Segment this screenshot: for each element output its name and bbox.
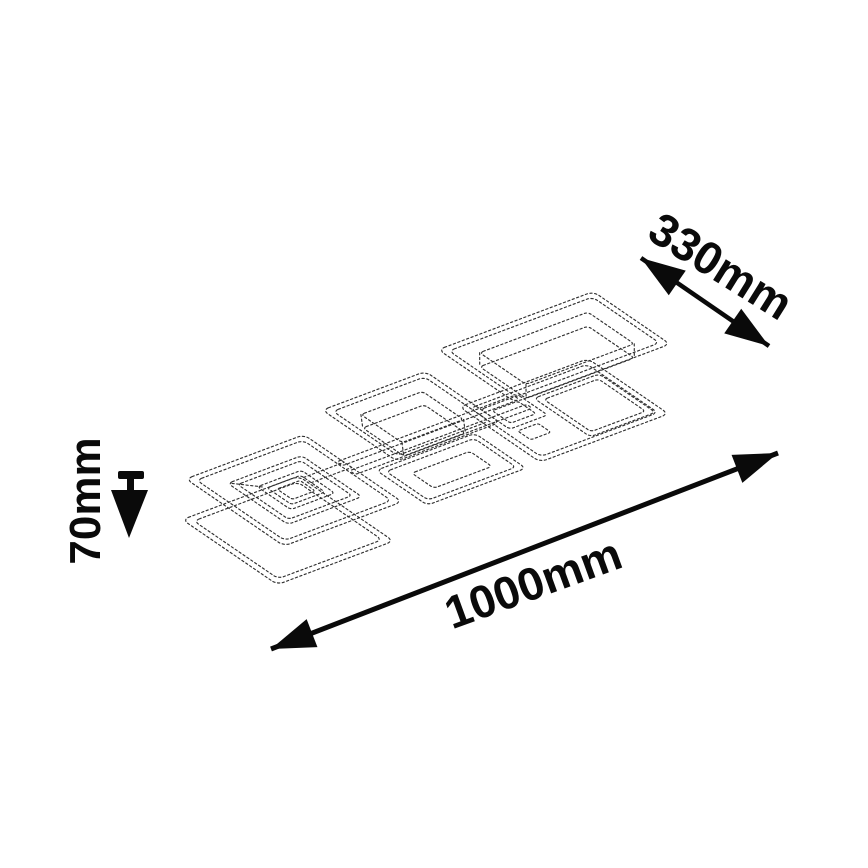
height-dimension-marker [111,471,148,538]
lamp-isometric-drawing [153,292,736,555]
lamp-bottom-layer [182,476,393,585]
dimension-diagram: 330mm 1000mm 70mm [0,0,868,868]
connector-rails [337,396,533,475]
frame-left-cluster [186,435,402,546]
diagram-svg [0,0,868,868]
frame-top-right [438,292,670,403]
height-dimension-label: 70mm [64,437,108,564]
height-down-arrow-icon [111,490,148,538]
height-tick-bar [118,471,144,479]
height-tick-stem [127,478,134,491]
length-arrow-icon [271,453,778,649]
frame-middle-lower [376,433,525,505]
length-dimension-arrow [271,453,778,649]
